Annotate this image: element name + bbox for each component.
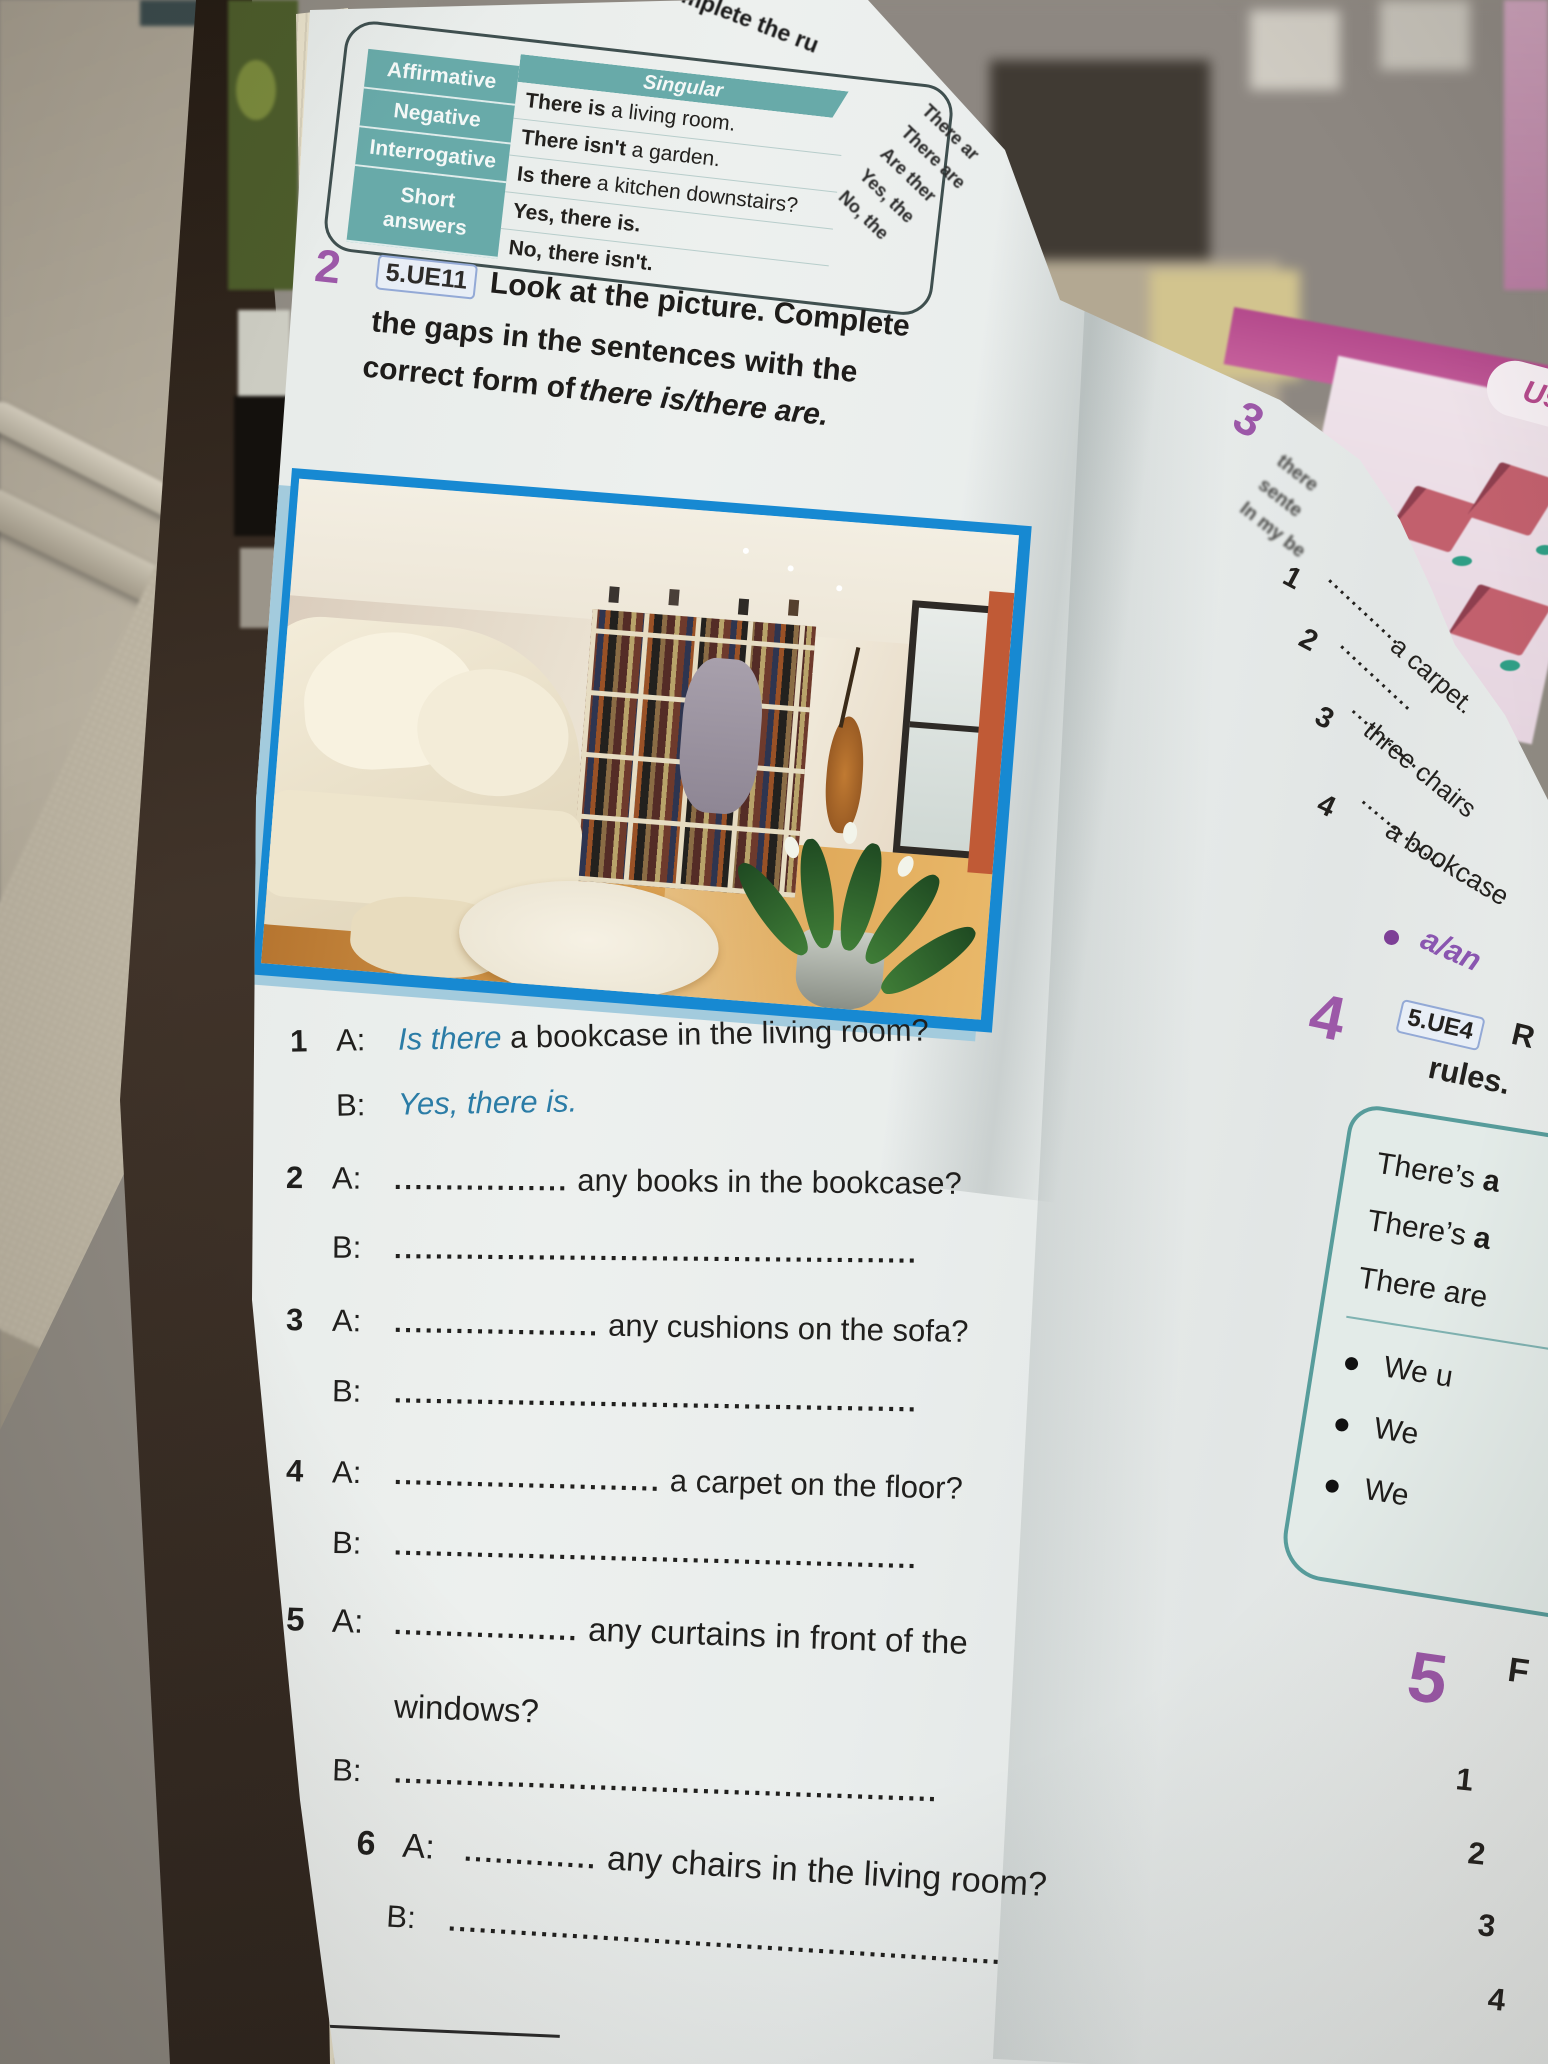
exercise-4-head-fragment: R xyxy=(1508,1016,1538,1056)
gap-4b[interactable]: ........................................… xyxy=(394,1530,919,1575)
gap-3b[interactable]: ........................................… xyxy=(394,1377,919,1417)
answer-is-there: Is there xyxy=(398,1020,502,1057)
item-5-answer: B:......................................… xyxy=(286,1751,940,1810)
curl-text-fragment-top: complete the ru xyxy=(653,0,823,59)
foliage-light-leaf xyxy=(236,60,276,120)
answer-yes-there-is: Yes, there is. xyxy=(398,1083,578,1121)
gap-2b[interactable]: ........................................… xyxy=(394,1233,919,1269)
gap-2a[interactable]: ................. xyxy=(394,1164,569,1197)
gap-3a[interactable]: .................... xyxy=(394,1307,600,1342)
bullet-dot-icon xyxy=(1344,1356,1359,1371)
gap-5b[interactable]: ........................................… xyxy=(394,1757,940,1807)
exercise-2-number: 2 xyxy=(312,238,379,298)
item-1-question: 1A:Is there a bookcase in the living roo… xyxy=(290,1012,929,1059)
textbook-photo: Us complete the ru rule Affirmative Nega… xyxy=(0,0,1548,2064)
ex3-item-4-tail: a bookcase xyxy=(1380,815,1514,913)
photo-window-1 xyxy=(1250,10,1340,90)
ex5-item-4: 4 xyxy=(1486,1981,1507,2019)
picture-scene xyxy=(261,479,1019,1020)
grammar-table-labels: Affirmative Negative Interrogative Short… xyxy=(346,49,519,259)
objects-on-bookcase xyxy=(608,586,619,603)
photo-window-2 xyxy=(1380,0,1470,70)
exercise-5-head-fragment: F xyxy=(1505,1651,1531,1693)
ex5-item-2: 2 xyxy=(1466,1835,1487,1873)
gap-4a[interactable]: .......................... xyxy=(394,1459,662,1497)
green-pillow-dot-1 xyxy=(1452,556,1472,566)
ex5-item-3: 3 xyxy=(1476,1907,1497,1945)
item-5-question: 5A:.................. any curtains in fr… xyxy=(286,1600,969,1662)
exercise-4-number: 4 xyxy=(1303,979,1351,1056)
rules-box: There’s a There’s a There are We u We We xyxy=(1277,1102,1548,1627)
guitar xyxy=(822,715,867,834)
item-4-question: 4A:.......................... a carpet o… xyxy=(286,1453,964,1507)
gap-6b[interactable]: ........................................… xyxy=(447,1905,1003,1970)
ex3-item-2-number: 2 xyxy=(1293,622,1323,659)
item-3-answer: B:......................................… xyxy=(286,1372,919,1419)
use-of-english-label: Us xyxy=(1519,375,1548,418)
exercise-5-number: 5 xyxy=(1403,1636,1453,1721)
item-2-question: 2A:................. any books in the bo… xyxy=(286,1160,962,1202)
exercise-3-instruction-fragments: there sente In my be xyxy=(1232,448,1348,566)
ceiling-lights xyxy=(742,548,748,554)
bullet-dot-icon xyxy=(1334,1417,1349,1432)
exercise-4-badge: 5.UE4 xyxy=(1395,999,1485,1051)
ex3-item-4-number: 4 xyxy=(1312,788,1341,825)
exercise-3-number: 3 xyxy=(1224,389,1273,449)
item-4-answer: B:......................................… xyxy=(286,1524,919,1577)
bullet-dot-icon xyxy=(1325,1478,1340,1493)
guitar-neck xyxy=(839,647,861,728)
ex3-item-3-number: 3 xyxy=(1309,700,1339,737)
exercise-4-rules-word: rules. xyxy=(1425,1050,1513,1102)
pink-page-edge xyxy=(1504,0,1548,290)
a-an-bullet-dot xyxy=(1384,930,1399,945)
item-6-question: 6A:............. any chairs in the livin… xyxy=(355,1824,1048,1905)
item-6-answer: B:......................................… xyxy=(340,1896,1004,1972)
strip-white-window xyxy=(238,310,290,396)
gap-5a[interactable]: .................. xyxy=(394,1609,580,1646)
ex3-item-1-number: 1 xyxy=(1277,560,1307,597)
gap-6a[interactable]: ............. xyxy=(463,1836,598,1875)
a-an-bullet-label: a/an xyxy=(1415,921,1486,979)
item-1-answer: B:Yes, there is. xyxy=(290,1083,578,1124)
living-room-picture xyxy=(251,468,1032,1045)
item-5-question-wrap: windows? xyxy=(393,1687,539,1730)
green-pillow-dot-3 xyxy=(1500,660,1520,671)
foliage-green xyxy=(228,0,298,290)
item-2-answer: B:......................................… xyxy=(286,1229,919,1271)
item-3-question: 3A:.................... any cushions on … xyxy=(286,1302,969,1350)
ex5-item-1: 1 xyxy=(1454,1761,1475,1799)
exercise-2-badge: 5.UE11 xyxy=(375,254,478,299)
lily-flower-2 xyxy=(843,821,859,844)
green-pillow-dot-2 xyxy=(1536,545,1548,555)
